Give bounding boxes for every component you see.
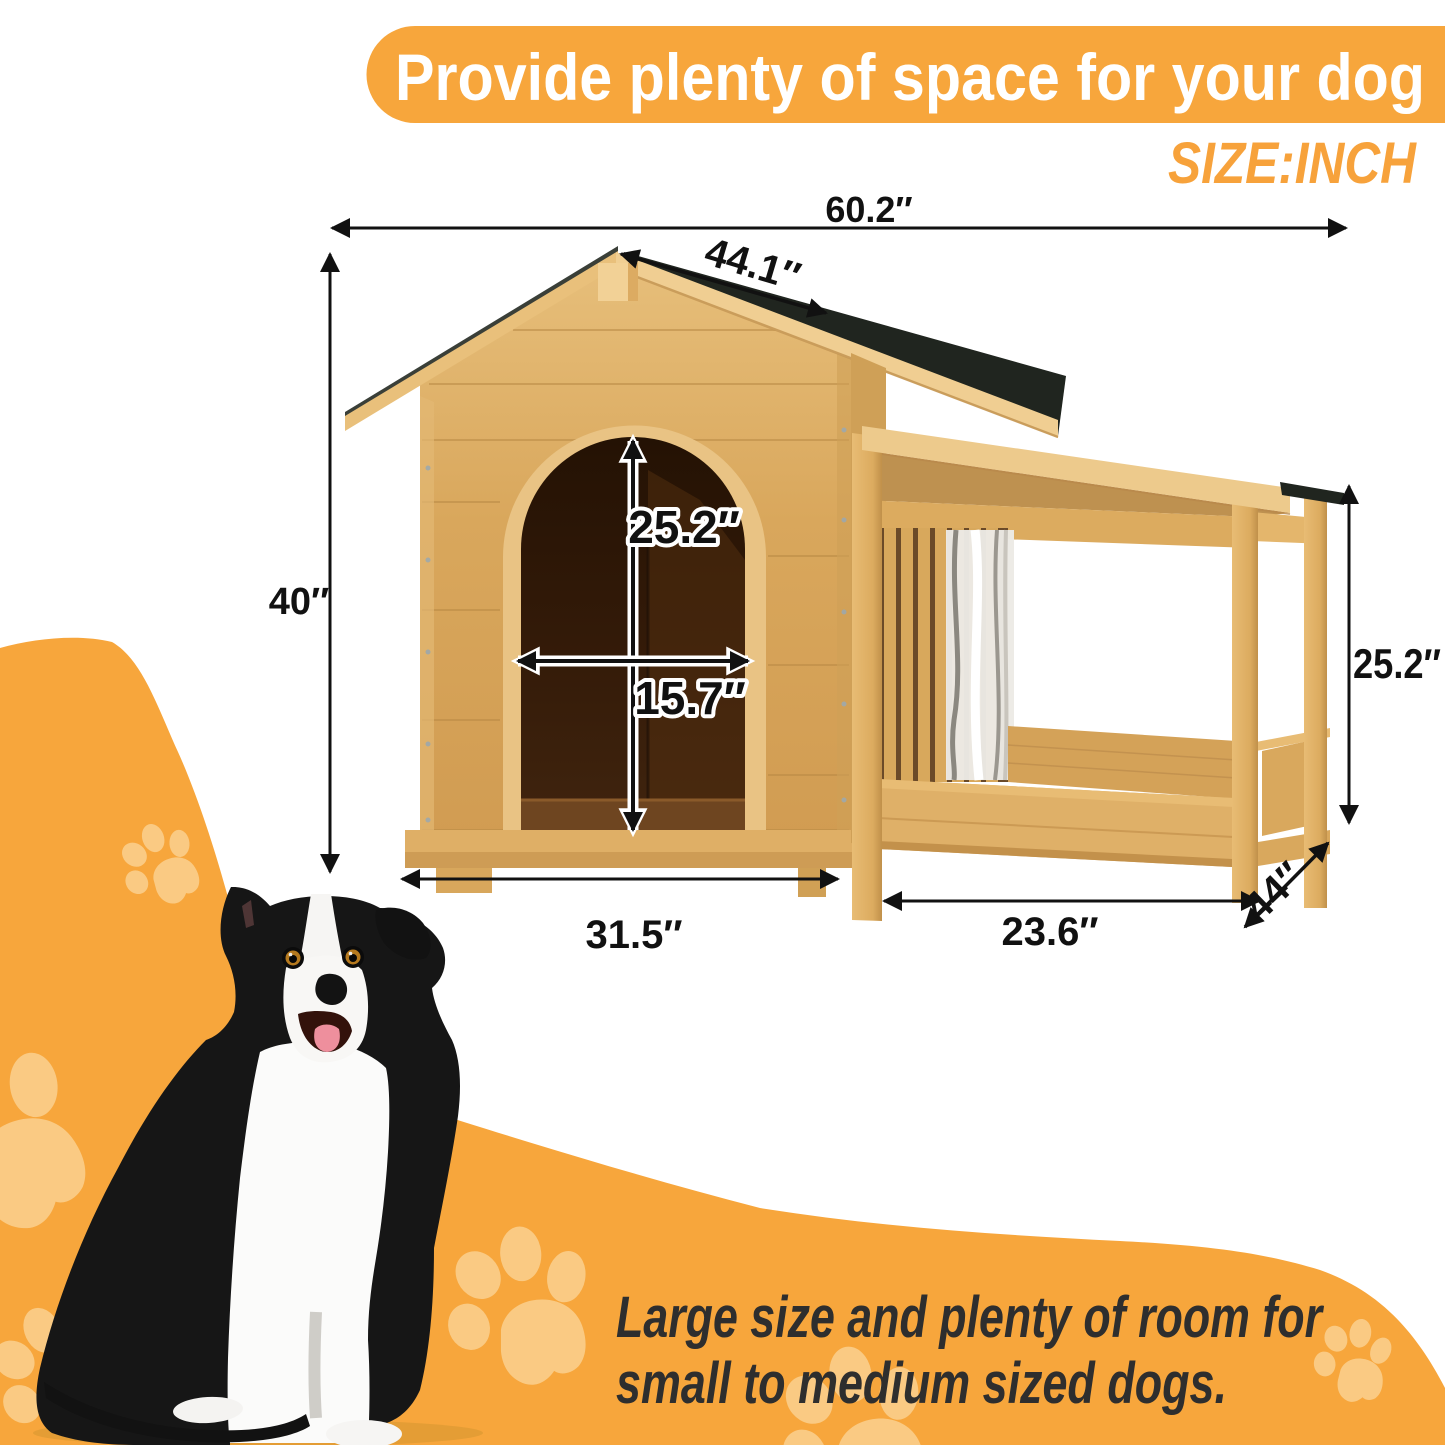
svg-text:31.5″: 31.5″ <box>585 913 682 957</box>
svg-text:23.6″: 23.6″ <box>1001 910 1098 954</box>
svg-text:25.2″: 25.2″ <box>628 501 740 553</box>
svg-text:small to medium sized dogs.: small to medium sized dogs. <box>616 1351 1227 1416</box>
svg-text:Provide plenty of space for yo: Provide plenty of space for your dog <box>395 40 1425 114</box>
svg-text:25.2″: 25.2″ <box>1353 640 1441 687</box>
svg-text:40″: 40″ <box>269 581 329 623</box>
svg-text:15.7″: 15.7″ <box>634 672 746 724</box>
svg-text:60.2″: 60.2″ <box>825 189 912 230</box>
svg-text:SIZE:INCH: SIZE:INCH <box>1168 131 1417 196</box>
svg-text:Large size and plenty of room: Large size and plenty of room for <box>616 1285 1325 1350</box>
